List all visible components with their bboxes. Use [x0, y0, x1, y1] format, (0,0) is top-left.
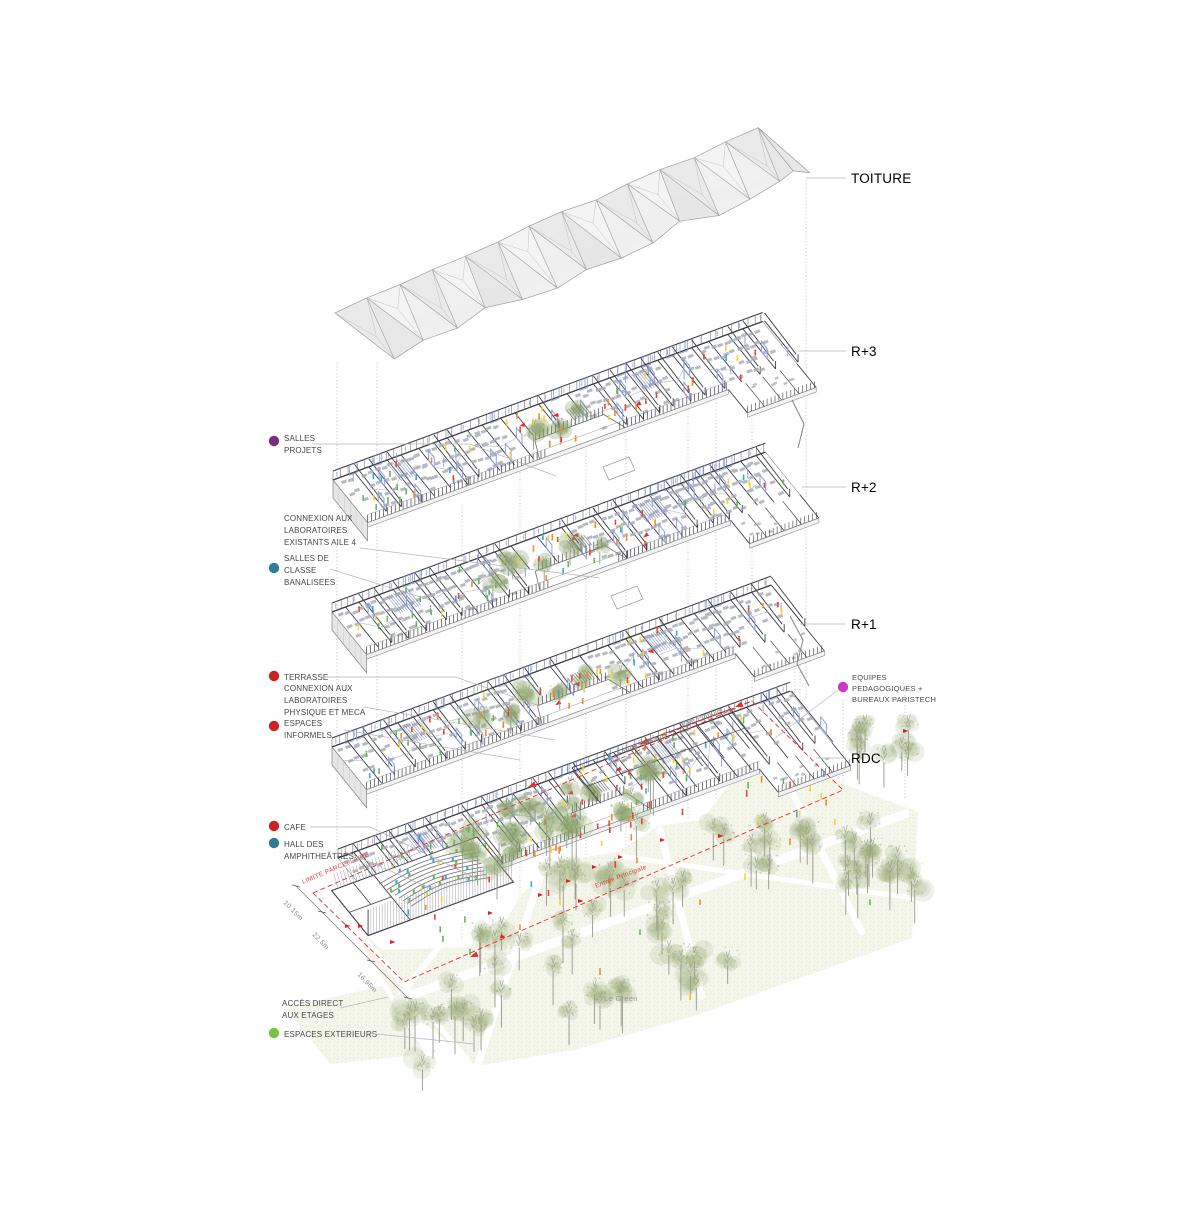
svg-text:TERRASSE: TERRASSE — [284, 673, 328, 682]
svg-text:CLASSE: CLASSE — [284, 566, 316, 575]
svg-text:CONNEXION AUX: CONNEXION AUX — [284, 684, 353, 693]
svg-text:ESPACES: ESPACES — [284, 719, 322, 728]
svg-text:PHYSIQUE ET MECA: PHYSIQUE ET MECA — [284, 708, 366, 717]
svg-text:CAFE: CAFE — [284, 823, 306, 832]
svg-text:ACCÈS DIRECT: ACCÈS DIRECT — [282, 999, 343, 1008]
svg-text:CONNEXION AUX: CONNEXION AUX — [284, 514, 353, 523]
svg-text:EXISTANTS AILE 4: EXISTANTS AILE 4 — [284, 538, 356, 547]
svg-text:LABORATOIRES: LABORATOIRES — [284, 526, 347, 535]
svg-text:Le Green: Le Green — [604, 994, 638, 1003]
svg-text:RDC: RDC — [851, 751, 881, 766]
svg-text:BANALISEES: BANALISEES — [284, 578, 335, 587]
svg-text:R+1: R+1 — [851, 617, 877, 632]
svg-text:INFORMELS: INFORMELS — [284, 731, 332, 740]
svg-text:R+2: R+2 — [851, 480, 877, 495]
svg-text:EQUIPES: EQUIPES — [852, 673, 887, 682]
svg-text:R+3: R+3 — [851, 344, 877, 359]
svg-text:SALLES DE: SALLES DE — [284, 554, 329, 563]
svg-text:PEDAGOGIQUES +: PEDAGOGIQUES + — [852, 684, 923, 693]
svg-text:BUREAUX PARISTECH: BUREAUX PARISTECH — [852, 695, 936, 704]
svg-text:LABORATOIRES: LABORATOIRES — [284, 696, 347, 705]
svg-text:TOITURE: TOITURE — [851, 171, 911, 186]
svg-text:PROJETS: PROJETS — [284, 446, 322, 455]
svg-text:HALL DES: HALL DES — [284, 840, 324, 849]
svg-text:AUX ETAGES: AUX ETAGES — [282, 1011, 334, 1020]
svg-text:ESPACES EXTERIEURS: ESPACES EXTERIEURS — [284, 1030, 377, 1039]
svg-text:AMPHITHEÂTRES: AMPHITHEÂTRES — [284, 852, 354, 861]
svg-text:SALLES: SALLES — [284, 434, 315, 443]
